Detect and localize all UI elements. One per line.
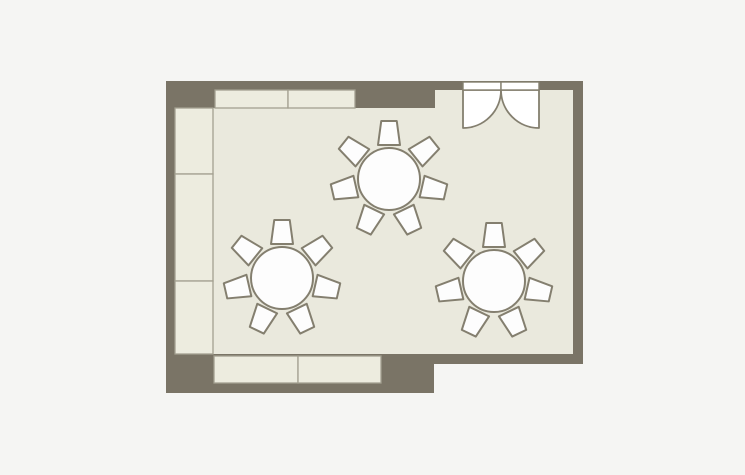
counter-left-1[interactable] (175, 108, 213, 174)
counter-top-1[interactable] (215, 90, 288, 108)
round-table-2[interactable] (251, 247, 313, 309)
round-table-3[interactable] (463, 250, 525, 312)
table-2-chair-1[interactable] (271, 220, 293, 244)
counter-bottom-2[interactable] (298, 356, 381, 383)
floorplan-page (0, 0, 745, 475)
counter-left-2[interactable] (175, 174, 213, 281)
counter-top-2[interactable] (288, 90, 355, 108)
round-table-1[interactable] (358, 148, 420, 210)
table-3-chair-1[interactable] (483, 223, 505, 247)
floorplan-svg (0, 0, 745, 475)
door-panel-right (501, 82, 539, 90)
table-1-chair-1[interactable] (378, 121, 400, 145)
door-panel-left (463, 82, 501, 90)
wall-block-top-left (166, 81, 215, 108)
wall-block-top-middle (355, 81, 435, 108)
counter-bottom-1[interactable] (214, 356, 298, 383)
counter-left-3[interactable] (175, 281, 213, 354)
